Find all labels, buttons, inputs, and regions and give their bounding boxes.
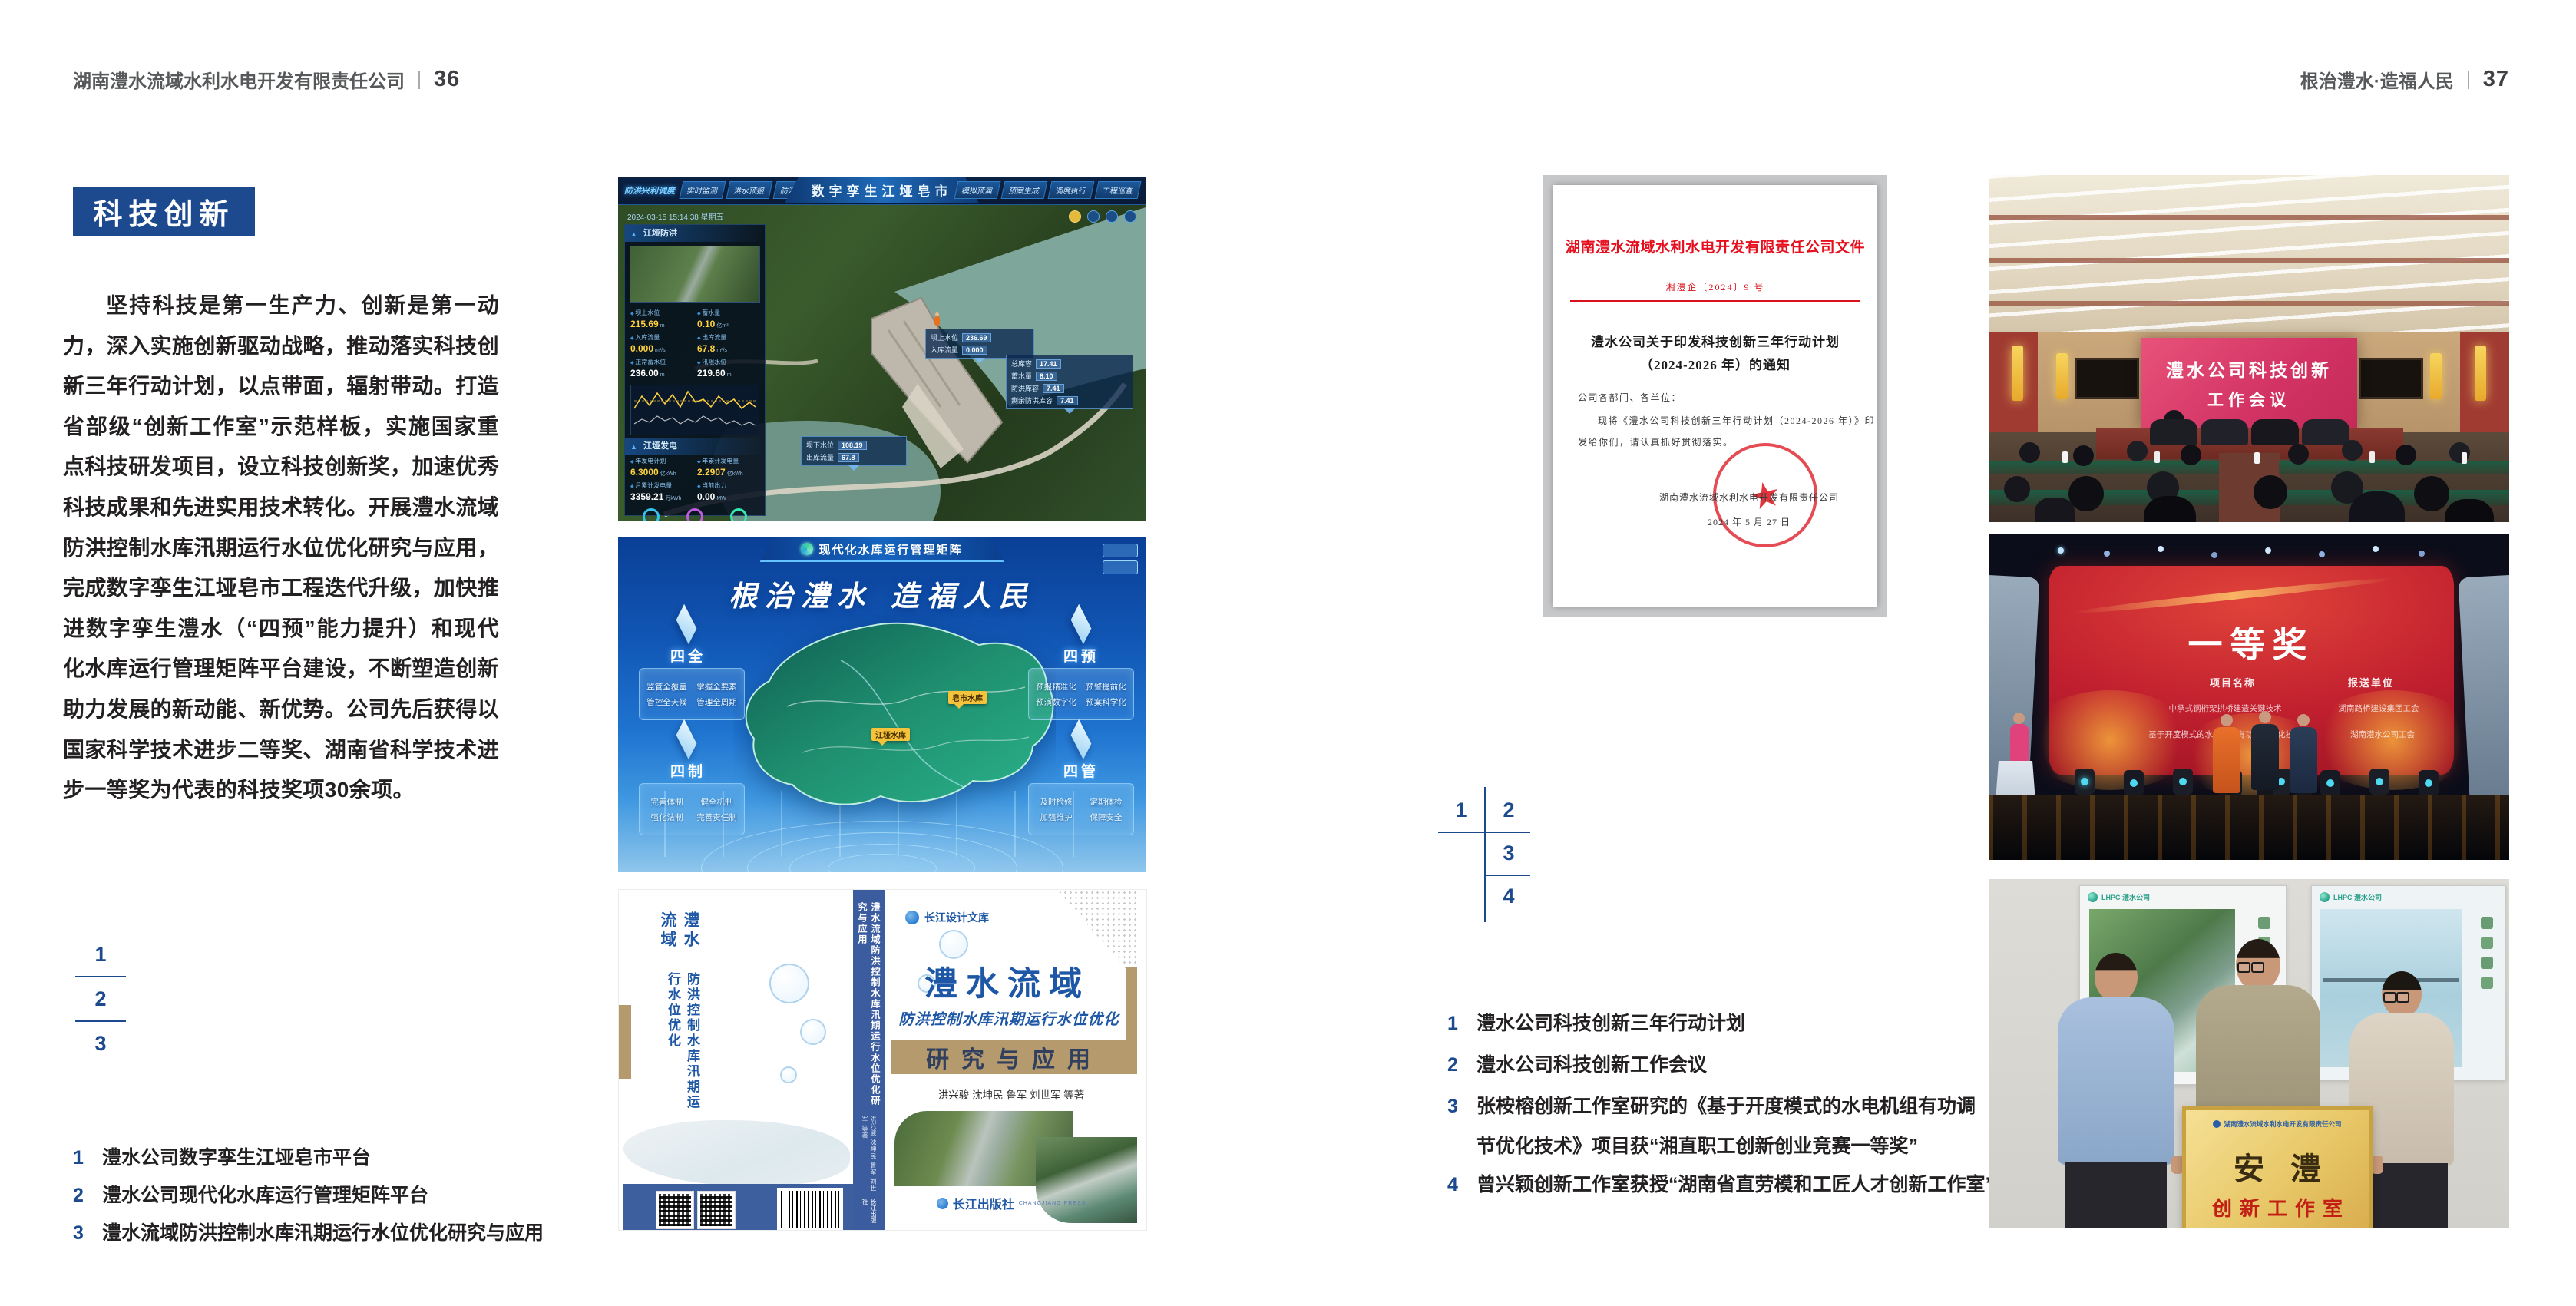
module-panel-siguan: 及时检修 定期体检 加强维护 保障安全	[1028, 783, 1134, 835]
publisher-name-en: CHANGJIANG PRESS	[1019, 1201, 1086, 1206]
glasses-icon	[2237, 962, 2250, 973]
wall-lamp	[2012, 346, 2023, 401]
book-subtitle: 防洪控制水库汛期运行水位优化	[885, 1007, 1133, 1029]
front-cover: 长江设计文库 澧水流域 防洪控制水库汛期运行水位优化 研究与应用 洪兴骏 沈坤民…	[885, 890, 1137, 1230]
watershed-map	[733, 614, 1056, 829]
page-number-right: 37	[2483, 67, 2509, 92]
award-row-org: 湖南澧水公司工会	[2325, 729, 2440, 740]
power-stats: 年发电计划6.3000亿kWh 年累计发电量2.2907亿kWh 月累计发电量3…	[625, 455, 765, 506]
audience-heads	[2004, 476, 2030, 502]
plaque-title: 创新工作室	[2186, 1193, 2369, 1222]
glasses-icon	[2251, 962, 2264, 973]
stage-truss-lights	[2058, 547, 2064, 554]
document-page: 湖南澧水流域水利水电开发有限责任公司文件 湘澧企〔2024〕9 号 澧水公司关于…	[1553, 185, 1877, 607]
dashboard-sidebar: 江垭防洪 坝上水位215.69m 蓄水量0.10亿m³ 入库流量0.000m³/…	[624, 224, 766, 516]
tab-flood-forecast[interactable]: 洪水预报	[726, 181, 773, 199]
innovation-plaque: 湖南澧水流域水利水电开发有限责任公司 安澧 创新工作室	[2182, 1106, 2373, 1228]
figure-meeting-photo: 澧水公司科技创新 工作会议	[1989, 175, 2509, 522]
person-left	[2042, 953, 2188, 1228]
column-project: 项目名称	[2164, 675, 2302, 689]
module-icon-siguan	[1071, 719, 1092, 759]
wall-lamp	[2430, 353, 2442, 399]
stat-value: 0.10	[697, 319, 715, 329]
matrix-title: 现代化水库运行管理矩阵	[818, 541, 962, 557]
popup-row: 剩余防洪库容7.41	[1011, 395, 1128, 405]
module-panel-sizhi: 完善体制 健全机制 强化法制 完善责任制	[639, 783, 745, 835]
gauge-icon	[730, 508, 747, 521]
popup-value: 7.41	[1043, 384, 1064, 393]
slogan-text: 根治澧水·造福人民	[2300, 66, 2454, 93]
stat-label: 年累计发电量	[697, 457, 759, 465]
figure-index-1: 1	[1440, 798, 1482, 822]
caption-number: 2	[73, 1175, 90, 1215]
stat-unit: 亿kWh	[660, 471, 676, 477]
panel-title-power: 江垭发电	[625, 438, 765, 455]
document-number: 湘澧企〔2024〕9 号	[1553, 280, 1877, 293]
glasses-icon	[2383, 992, 2396, 1003]
spine-authors: 洪兴骏 沈坤民 鲁军 刘世军 等著	[861, 1116, 878, 1199]
book-title-vertical: 澧水流域	[656, 911, 702, 965]
tv-screen	[2075, 358, 2139, 399]
stat-label: 汛限水位	[697, 358, 759, 366]
popup-label: 坝下水位	[806, 440, 834, 450]
document-title-line2: （2024-2026 年）的通知	[1553, 354, 1877, 373]
popup-label: 蓄水量	[1011, 371, 1032, 381]
front-tan-strip	[1126, 967, 1137, 1040]
stat-value: 236.00	[630, 368, 659, 379]
stat-value: 0.00	[697, 491, 715, 502]
ceiling-lights	[1989, 175, 2509, 332]
module-label-siquan: 四全	[653, 645, 723, 666]
module-item: 健全机制	[701, 796, 733, 808]
module-item: 预案科学化	[1086, 696, 1126, 708]
plaque-header-row: 湖南澧水流域水利水电开发有限责任公司	[2186, 1119, 2369, 1129]
book-spine: 澧水流域防洪控制水库汛期运行水位优化研究与应用 洪兴骏 沈坤民 鲁军 刘世军 等…	[853, 890, 885, 1230]
module-item: 强化法制	[651, 812, 683, 823]
stat-cell: 出库流量67.8m³/s	[697, 333, 759, 355]
alert-icon[interactable]	[1087, 210, 1100, 223]
figure-plaque-photo: LHPC 澧水公司 LHPC 澧水公司	[1989, 879, 2509, 1228]
module-item: 管理全周期	[696, 696, 737, 708]
award-title: 一等奖	[2049, 617, 2454, 666]
bubble-decoration	[769, 964, 809, 1003]
document-red-header: 湖南澧水流域水利水电开发有限责任公司文件	[1553, 236, 1877, 256]
stat-value: 0.000	[630, 343, 653, 354]
document-signer: 湖南澧水流域水利水电开发有限责任公司	[1622, 491, 1876, 504]
stat-label: 坝上水位	[630, 309, 693, 317]
stat-cell: 当前出力0.00MW	[697, 481, 759, 504]
map-popup-downstream: 坝下水位108.19 出库流量67.8	[801, 436, 907, 466]
stat-cell: 坝上水位215.69m	[630, 309, 693, 331]
nav-section-label: 防洪兴利调度	[624, 184, 675, 197]
presenter-suit	[2251, 724, 2279, 790]
tab-project-inspect[interactable]: 工程巡查	[1095, 181, 1142, 199]
figure-index-2: 2	[1488, 798, 1529, 822]
matrix-header: 现代化水库运行管理矩阵	[760, 537, 1004, 562]
calligraphy-strokes	[2481, 917, 2493, 929]
caption-left-2: 2 澧水公司现代化水库运行管理矩阵平台	[73, 1175, 428, 1215]
popup-row: 蓄水量8.10	[1011, 371, 1128, 381]
module-panel-siyu: 预报精准化 预警提前化 预演数字化 预案科学化	[1028, 668, 1134, 720]
caption-right-1: 1 澧水公司科技创新三年行动计划	[1447, 1012, 1745, 1035]
lhpc-logo-text: LHPC 澧水公司	[2101, 892, 2150, 902]
tab-plan-generate[interactable]: 预案生成	[1001, 181, 1048, 199]
caption-text: 张桉榕创新工作室研究的《基于开度模式的水电机组有功调节优化技术》项目获“湘直职工…	[1476, 1086, 1979, 1166]
stat-cell: 汛限水位219.60m	[697, 358, 759, 380]
message-icon[interactable]	[1106, 210, 1118, 223]
figure-book-cover: 澧水流域 防洪控制水库汛期运行水位优化 研究与应用 澧水流域防洪控制水库汛期运行…	[618, 889, 1147, 1231]
water-level-chart	[630, 385, 759, 435]
light-streak	[2072, 575, 2394, 617]
stat-label: 当前出力	[697, 481, 759, 490]
qr-code	[697, 1191, 736, 1229]
screen-line1: 澧水公司科技创新	[2166, 355, 2332, 382]
document-salutation: 公司各部门、各单位：	[1578, 391, 1682, 404]
module-item: 保障安全	[1090, 812, 1123, 823]
figure-index-1: 1	[75, 943, 126, 967]
bubble-decoration	[939, 930, 968, 959]
popup-value: 0.000	[962, 346, 987, 355]
magazine-spread: 湖南澧水流域水利水电开发有限责任公司 36 科技创新 坚持科技是第一生产力、创新…	[0, 0, 2576, 1306]
header-divider	[2468, 71, 2469, 89]
popup-label: 入库流量	[931, 345, 958, 355]
right-running-head: 根治澧水·造福人民 37	[2300, 66, 2509, 93]
popup-value: 8.10	[1036, 372, 1057, 381]
tab-dispatch-execute[interactable]: 调度执行	[1048, 181, 1095, 199]
popup-value: 7.41	[1057, 396, 1078, 405]
panel-title-flood: 江垭防洪	[625, 225, 765, 242]
dashboard-title: 数字孪生江垭皂市	[785, 177, 979, 203]
dashboard-datetime: 2024-03-15 15:14:38 星期五	[627, 210, 724, 222]
stat-cell: 年累计发电量2.2907亿kWh	[697, 457, 759, 479]
module-item: 预警提前化	[1086, 681, 1126, 693]
module-item: 及时检修	[1040, 796, 1073, 808]
reflective-floor	[1989, 795, 2509, 860]
page-number-left: 36	[434, 67, 460, 92]
module-item: 加强维护	[1040, 812, 1073, 823]
document-date: 2024 年 5 月 27 日	[1622, 515, 1876, 528]
stat-value: 219.60	[697, 368, 726, 379]
foreground-silhouettes	[2035, 498, 2075, 522]
popup-row: 总库容17.41	[1011, 359, 1128, 369]
module-item: 掌握全要素	[696, 681, 737, 693]
series-name: 长江设计文库	[924, 910, 989, 925]
stat-cell: 入库流量0.000m³/s	[630, 333, 693, 355]
caption-left-1: 1 澧水公司数字孪生江垭皂市平台	[73, 1138, 371, 1178]
popup-value: 108.19	[838, 441, 867, 450]
award-row-project: 中承式钢桁架拱桥建造关键技术	[2110, 703, 2340, 714]
module-icon-sizhi	[676, 719, 697, 759]
figure-index-divider	[75, 976, 126, 977]
stat-value: 3359.21	[630, 491, 663, 502]
caption-text: 澧水公司现代化水库运行管理矩阵平台	[102, 1175, 428, 1215]
person-shirt	[2058, 997, 2174, 1165]
stat-label: 月累计发电量	[630, 481, 693, 490]
figure-index-3: 3	[1488, 841, 1529, 865]
hand	[2371, 1156, 2383, 1174]
gauge-icon	[686, 508, 703, 521]
figure-index-2: 2	[75, 987, 126, 1011]
plaque-header-text: 湖南澧水流域水利水电开发有限责任公司	[2224, 1119, 2341, 1129]
figure-index-4: 4	[1488, 884, 1529, 908]
popup-row: 坝下水位108.19	[806, 440, 901, 450]
stage-side-panel	[2458, 574, 2509, 831]
caption-text: 曾兴颖创新工作室获授“湖南省直劳模和工匠人才创新工作室”	[1476, 1173, 1995, 1196]
module-item: 完善责任制	[696, 812, 737, 823]
module-label-siyu: 四预	[1047, 645, 1116, 666]
figure-digital-twin-platform: 防洪兴利调度 实时监测 洪水预报 防洪预警 数字孪生江垭皂市 模拟预演 预案生成…	[618, 177, 1146, 521]
figure-award-photo: 一等奖 项目名称 报送单位 中承式钢桁架拱桥建造关键技术 湖南路桥建设集团工会 …	[1989, 534, 2509, 860]
popup-label: 剩余防洪库容	[1011, 395, 1053, 405]
settings-icon[interactable]	[1124, 210, 1136, 223]
caption-number: 3	[73, 1213, 90, 1253]
figure-matrix-platform: 现代化水库运行管理矩阵 根治澧水 造福人民 皂市水库 江垭水库 四全 监管全覆盖…	[618, 537, 1146, 872]
stat-unit: 亿kWh	[727, 471, 743, 477]
lhpc-logo-icon	[2320, 892, 2330, 902]
stat-cell: 蓄水量0.10亿m³	[697, 309, 759, 331]
figure-index-divider	[75, 1020, 126, 1022]
popup-row: 入库流量0.000	[931, 345, 1029, 355]
caption-number: 1	[1447, 1012, 1464, 1035]
wall-lamp	[2056, 353, 2068, 399]
ceiling-beam	[1989, 301, 2509, 306]
figure-grid-hline	[1484, 875, 1530, 876]
back-cover-tan-tab	[619, 1005, 631, 1079]
plaque-name: 安澧	[2186, 1144, 2369, 1189]
stat-value: 215.69	[630, 319, 659, 329]
unit-gauges	[625, 506, 765, 521]
figure-grid-vline	[1484, 787, 1486, 922]
caption-text: 澧水公司科技创新三年行动计划	[1476, 1012, 1745, 1035]
stat-unit: m³/s	[716, 348, 727, 353]
center-aisle	[2219, 453, 2280, 522]
spine-publisher: 长江出版社	[861, 1199, 878, 1224]
ceiling-beam	[1989, 258, 2509, 263]
document-body-line1: 现将《澧水公司科技创新三年行动计划（2024-2026 年）》印	[1598, 414, 1875, 427]
column-org: 报送单位	[2302, 675, 2440, 689]
popup-value: 236.69	[962, 333, 991, 342]
isbn-barcode	[777, 1188, 843, 1231]
lhpc-logo: LHPC 澧水公司	[2320, 892, 2382, 902]
stat-unit: m³/s	[655, 348, 666, 353]
figure-grid-hline	[1438, 832, 1530, 833]
book-authors: 洪兴骏 沈坤民 鲁军 刘世军 等著	[885, 1086, 1137, 1102]
popup-row: 出库流量67.8	[806, 452, 901, 462]
caption-left-3: 3 澧水流域防洪控制水库汛期运行水位优化研究与应用	[73, 1213, 544, 1253]
popup-row: 坝上水位236.69	[931, 332, 1029, 342]
bubble-decoration	[800, 1019, 826, 1045]
audience-heads	[2019, 442, 2040, 463]
calligraphy-strokes	[2258, 917, 2270, 929]
wall-lamp	[2475, 346, 2486, 401]
gauge-icon	[643, 508, 660, 521]
stat-unit: m	[660, 323, 665, 329]
series-logo: 长江设计文库	[905, 910, 989, 925]
lhpc-logo: LHPC 澧水公司	[2088, 892, 2150, 902]
stat-cell: 月累计发电量3359.21万kWh	[630, 481, 693, 504]
caption-number: 2	[1447, 1053, 1464, 1076]
glasses-icon	[2396, 992, 2409, 1003]
tv-screen	[2359, 358, 2423, 399]
right-nav-group: 模拟预演 预案生成 调度执行 工程巡查	[956, 181, 1139, 199]
publisher-logo-icon	[937, 1198, 948, 1209]
bubble-decoration	[780, 1066, 797, 1083]
flood-stats: 坝上水位215.69m 蓄水量0.10亿m³ 入库流量0.000m³/s 出库流…	[625, 306, 765, 382]
module-label-sizhi: 四制	[653, 760, 723, 781]
book-subtitle-vertical: 防洪控制水库汛期运行水位优化	[656, 972, 702, 1122]
left-running-head: 湖南澧水流域水利水电开发有限责任公司 36	[73, 66, 460, 93]
module-item: 定期体检	[1090, 796, 1123, 808]
dam-thumbnail	[630, 246, 760, 303]
award-winner-orange	[2213, 727, 2240, 793]
stat-cell: 年发电计划6.3000亿kWh	[630, 457, 693, 479]
book-title: 澧水流域	[885, 957, 1129, 1005]
stat-unit: m	[727, 372, 732, 378]
stat-label: 正常蓄水位	[630, 358, 693, 366]
body-paragraph: 坚持科技是第一生产力、创新是第一动力，深入实施创新驱动战略，推动落实科技创新三年…	[63, 286, 499, 811]
document-body-line2: 发给你们，请认真抓好贯彻落实。	[1578, 435, 1734, 448]
caption-number: 4	[1447, 1173, 1464, 1196]
popup-row: 防洪库容7.41	[1011, 383, 1128, 393]
hud-icon-group	[1069, 210, 1136, 223]
stat-cell: 正常蓄水位236.00m	[630, 358, 693, 380]
document-title-line1: 澧水公司关于印发科技创新三年行动计划	[1553, 331, 1877, 350]
award-row-org: 湖南路桥建设集团工会	[2317, 703, 2440, 714]
company-name: 湖南澧水流域水利水电开发有限责任公司	[73, 66, 405, 93]
map-tag-zaoshi[interactable]: 皂市水库	[948, 691, 987, 704]
caption-right-3: 3 张桉榕创新工作室研究的《基于开度模式的水电机组有功调节优化技术》项目获“湘直…	[1447, 1086, 1985, 1166]
stat-label: 入库流量	[630, 333, 693, 342]
module-item: 监管全覆盖	[646, 681, 687, 693]
audience-desk-row	[2279, 461, 2509, 474]
stat-unit: 亿m³	[716, 323, 728, 329]
person-pants	[2065, 1162, 2167, 1228]
caption-number: 3	[1447, 1086, 1464, 1166]
module-item: 完善体制	[651, 796, 683, 808]
plaque-logo-icon	[2213, 1120, 2221, 1128]
popup-label: 出库流量	[806, 452, 834, 462]
module-item: 管控全天候	[646, 696, 687, 708]
stat-unit: m	[660, 372, 665, 378]
popup-label: 总库容	[1011, 359, 1032, 369]
ceiling-beam	[1989, 215, 2509, 220]
award-winner-navy	[2290, 727, 2317, 793]
worker-figure	[934, 316, 940, 326]
matrix-button[interactable]	[1103, 544, 1138, 557]
caption-number: 1	[73, 1138, 90, 1178]
publisher-block: 长江出版社 CHANGJIANG PRESS	[885, 1194, 1137, 1212]
book-title-tail-band: 研究与应用	[891, 1040, 1137, 1074]
stat-value: 2.2907	[697, 467, 726, 478]
popup-value: 67.8	[838, 453, 859, 462]
caption-right-2: 2 澧水公司科技创新工作会议	[1447, 1053, 1707, 1076]
lhpc-logo-icon	[801, 543, 813, 555]
publisher-globe-icon	[905, 911, 919, 924]
popup-label: 防洪库容	[1011, 383, 1039, 393]
person-head	[2095, 953, 2138, 1002]
section-title: 科技创新	[73, 187, 255, 236]
stat-label: 出库流量	[697, 333, 759, 342]
audience-desk-row	[2279, 490, 2509, 505]
map-popup-capacity: 总库容17.41 蓄水量8.10 防洪库容7.41 剩余防洪库容7.41	[1006, 355, 1133, 409]
audience-desk-row	[1989, 461, 2219, 474]
stage-light-glows	[2081, 778, 2088, 785]
stat-value: 67.8	[697, 343, 715, 354]
module-panel-siquan: 监管全覆盖 掌握全要素 管控全天候 管理全周期	[639, 668, 745, 720]
caption-text: 澧水流域防洪控制水库汛期运行水位优化研究与应用	[102, 1213, 544, 1253]
module-item: 预报精准化	[1036, 681, 1076, 693]
module-item: 预演数字化	[1036, 696, 1076, 708]
header-divider	[418, 71, 420, 89]
stat-value: 6.3000	[630, 467, 659, 478]
lhpc-logo-text: LHPC 澧水公司	[2333, 892, 2382, 902]
slogan-calligraphy: 根治澧水 造福人民	[618, 573, 1146, 614]
water-bottles	[2062, 451, 2068, 463]
stat-label: 蓄水量	[697, 309, 759, 317]
figure-official-document: 湖南澧水流域水利水电开发有限责任公司文件 湘澧企〔2024〕9 号 澧水公司关于…	[1543, 175, 1887, 617]
tab-realtime-monitor[interactable]: 实时监测	[680, 181, 726, 199]
tab-simulation[interactable]: 模拟预演	[954, 181, 1001, 199]
caption-text: 澧水公司数字孪生江垭皂市平台	[102, 1138, 371, 1178]
figure-index-3: 3	[75, 1032, 126, 1056]
caption-text: 澧水公司科技创新工作会议	[1476, 1053, 1707, 1076]
document-red-rule	[1570, 300, 1860, 302]
screen-line2: 工作会议	[2207, 388, 2290, 411]
stat-label: 年发电计划	[630, 457, 693, 465]
panel-speaker-silhouettes	[2150, 419, 2197, 445]
popup-label: 坝上水位	[931, 332, 958, 342]
popup-value: 17.41	[1036, 359, 1061, 369]
map-tag-jiangya[interactable]: 江垭水库	[871, 728, 910, 741]
module-label-siguan: 四管	[1047, 760, 1116, 781]
user-icon[interactable]	[1069, 210, 1081, 223]
stat-unit: MW	[716, 496, 726, 501]
lhpc-logo-icon	[2088, 892, 2098, 902]
spine-title: 澧水流域防洪控制水库汛期运行水位优化研究与应用	[856, 902, 882, 1108]
caption-right-4: 4 曾兴颖创新工作室获授“湖南省直劳模和工匠人才创新工作室”	[1447, 1173, 1995, 1196]
publisher-name: 长江出版社	[953, 1194, 1014, 1212]
qr-code	[656, 1191, 694, 1229]
stat-unit: 万kWh	[665, 496, 681, 501]
